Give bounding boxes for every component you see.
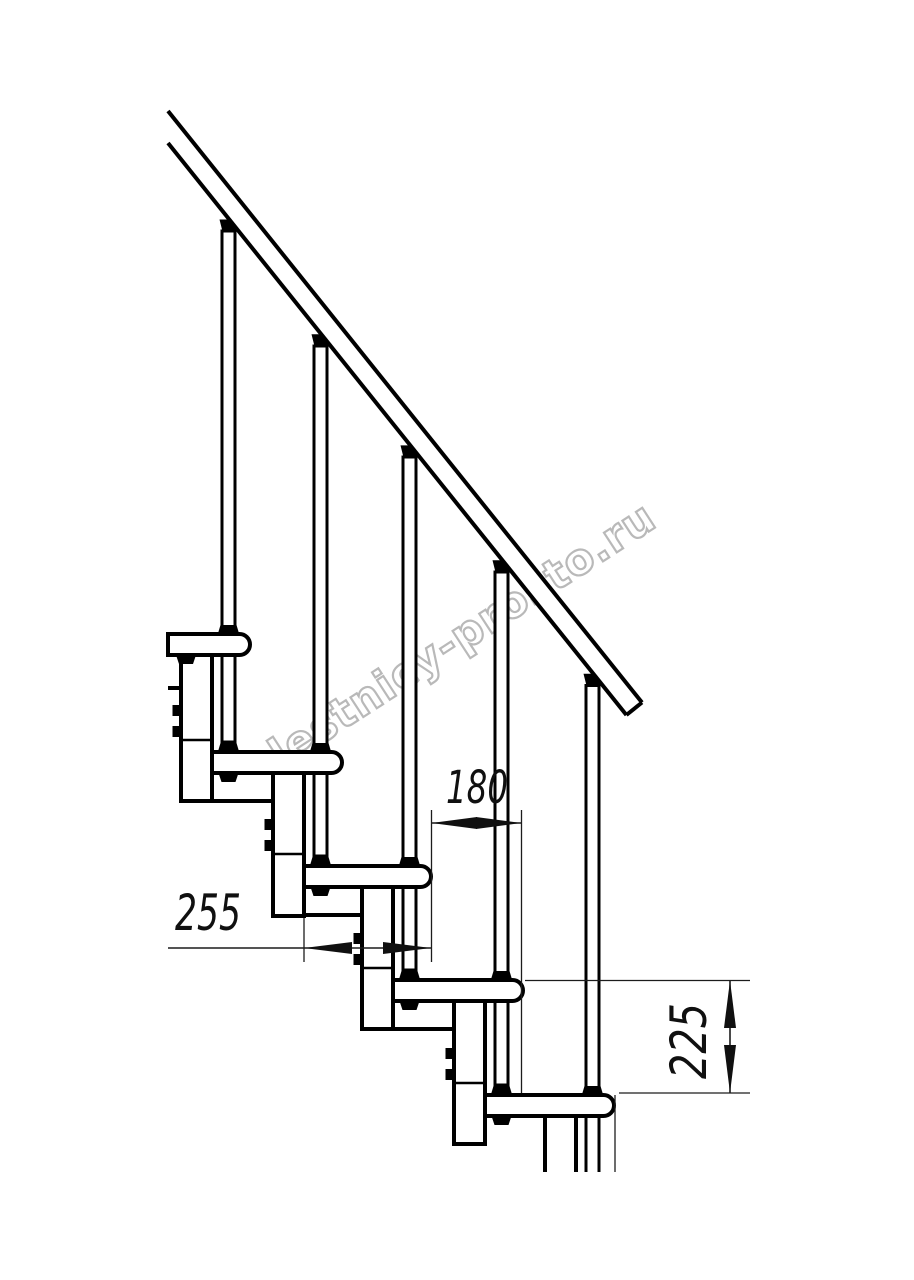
tread-3 [304,866,431,887]
tread-1 [168,634,250,655]
tread-5 [485,1095,614,1116]
baluster-base-2 [310,743,332,753]
baluster-3 [399,445,421,867]
stair-drawing: lestnicy-prosto.ru [0,0,914,1280]
baluster-5 [582,674,604,1096]
tread-2 [212,752,342,773]
drawing-canvas: lestnicy-prosto.ru [0,0,914,1280]
support-column-5 [545,1116,576,1172]
baluster-base-3 [399,857,421,867]
dimension-label-step-run: 180 [446,761,508,814]
dimension-label-step-rise: 225 [660,1003,718,1079]
baluster-2 [310,334,332,753]
tread-4 [393,980,523,1001]
support-column-1 [173,655,213,801]
baluster-base-4 [491,971,513,981]
baluster-1 [218,220,240,636]
baluster-base-5 [582,1086,604,1096]
baluster-base-1 [218,625,240,635]
dimension-label-tread-depth: 255 [175,884,241,942]
dimension-step-rise: 225 [525,981,750,1173]
